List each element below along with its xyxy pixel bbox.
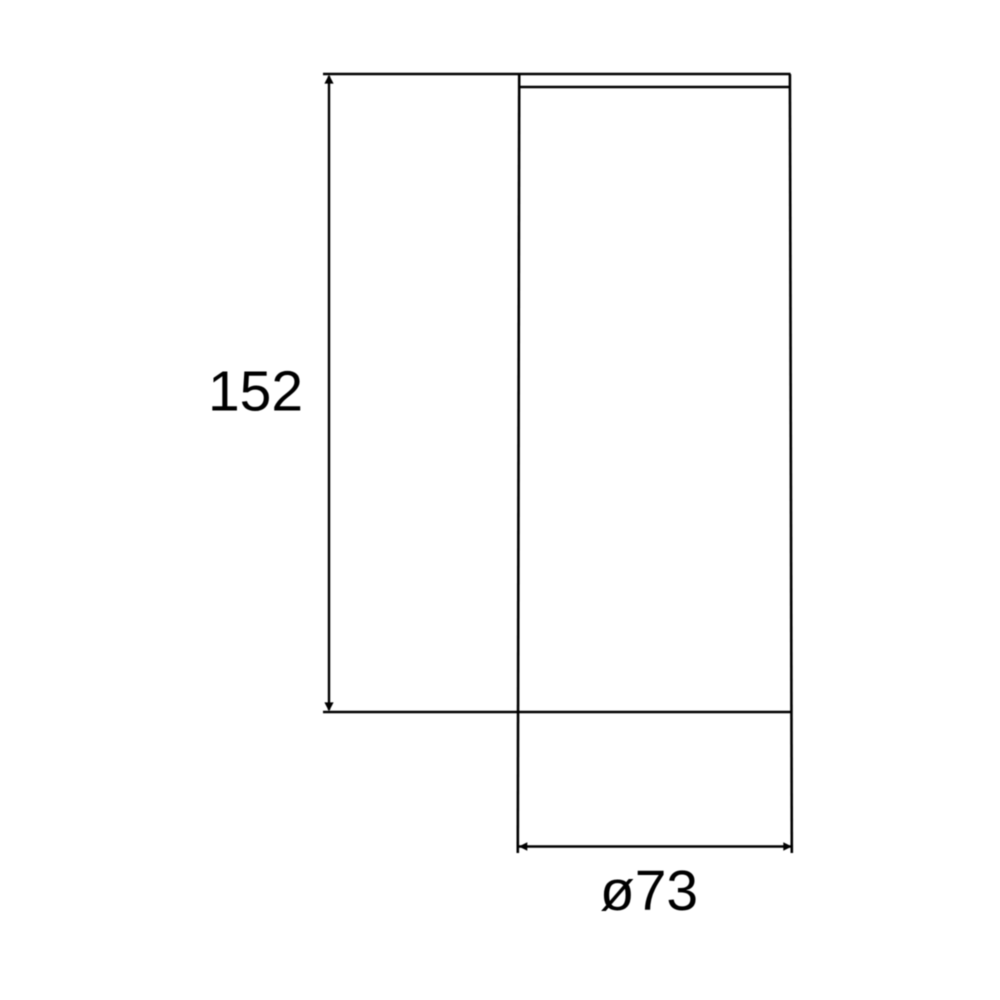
- svg-text:152: 152: [208, 360, 303, 424]
- svg-text:ø73: ø73: [600, 859, 698, 923]
